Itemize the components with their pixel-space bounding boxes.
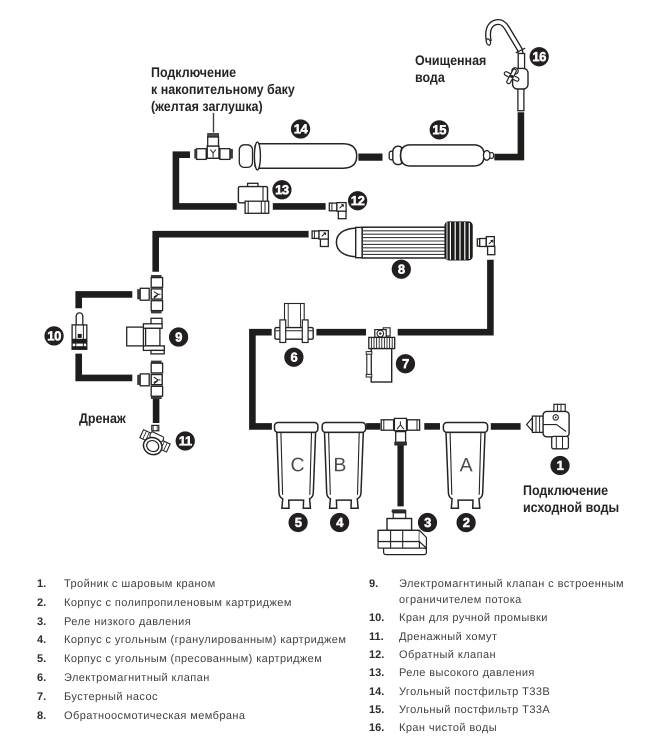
svg-text:9: 9	[175, 329, 182, 344]
svg-text:2: 2	[463, 515, 470, 530]
svg-text:4: 4	[336, 515, 344, 530]
svg-text:6: 6	[290, 350, 297, 365]
svg-text:A: A	[460, 454, 473, 476]
svg-text:12: 12	[351, 193, 365, 208]
svg-text:16: 16	[532, 49, 546, 64]
svg-text:5: 5	[295, 515, 302, 530]
svg-text:C: C	[290, 454, 304, 476]
svg-text:13: 13	[275, 182, 289, 197]
svg-text:14: 14	[294, 121, 309, 136]
svg-text:B: B	[333, 454, 346, 476]
svg-text:3: 3	[424, 515, 431, 530]
svg-text:15: 15	[432, 122, 446, 137]
svg-text:10: 10	[47, 328, 61, 343]
svg-text:1: 1	[557, 458, 564, 473]
svg-text:7: 7	[402, 356, 409, 371]
svg-text:8: 8	[398, 262, 405, 277]
svg-text:11: 11	[179, 433, 192, 448]
